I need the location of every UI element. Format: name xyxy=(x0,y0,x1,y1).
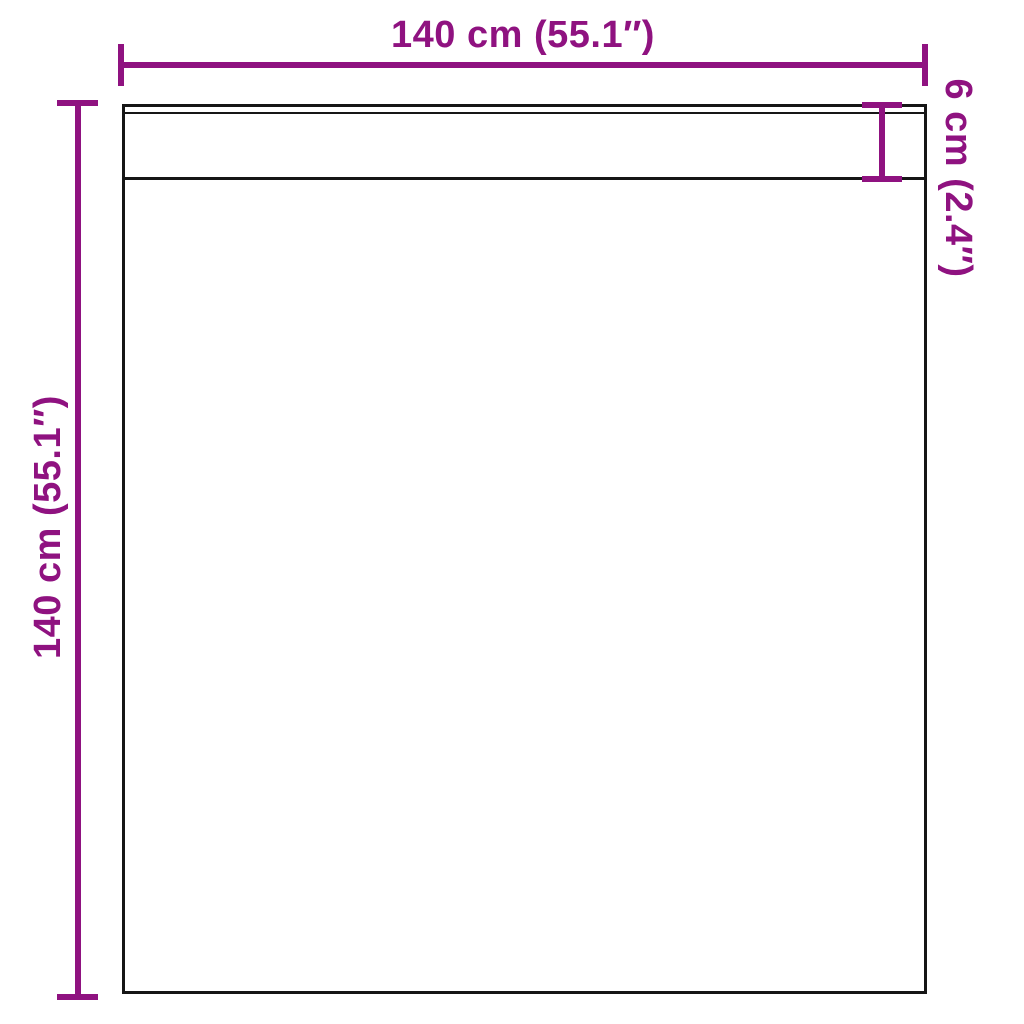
hem-dimension-line xyxy=(879,104,885,182)
height-dimension-top-tick xyxy=(57,100,98,106)
height-dimension-line xyxy=(75,101,81,1000)
hem-dimension-label: 6 cm (2.4″) xyxy=(939,78,977,277)
hem-dimension-bottom-tick xyxy=(862,176,902,182)
height-dimension-bottom-tick xyxy=(57,994,98,1000)
height-dimension-label: 140 cm (55.1″) xyxy=(29,395,67,659)
width-dimension-line xyxy=(121,62,925,68)
top-seam-line xyxy=(122,112,927,114)
hem-dimension-top-tick xyxy=(862,102,902,108)
fabric-panel xyxy=(122,104,927,994)
dimension-diagram: 140 cm (55.1″) 140 cm (55.1″) 6 cm (2.4″… xyxy=(0,0,1024,1024)
width-dimension-label: 140 cm (55.1″) xyxy=(121,16,925,54)
hem-stitch-line xyxy=(122,177,927,180)
